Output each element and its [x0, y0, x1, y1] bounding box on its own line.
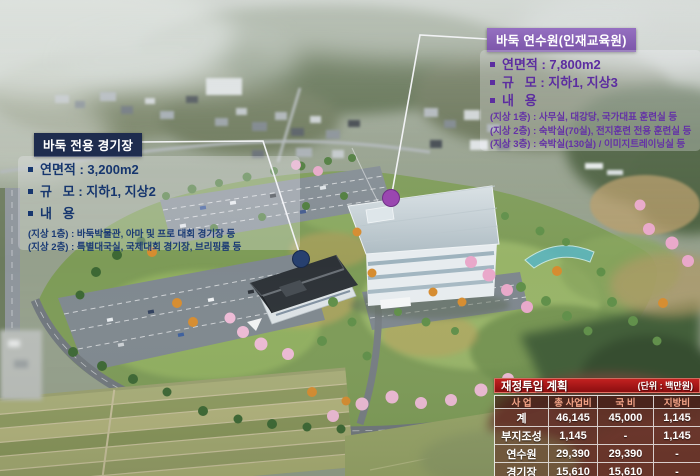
- budget-table-grid: 사 업 총 사업비 국 비 지방비 계 46,145 45,000 1,145 …: [494, 395, 700, 476]
- training-callout-panel: 연면적 : 7,800m2 규 모 : 지하1, 지상3 내 용 (지상 1층)…: [480, 50, 700, 151]
- budget-table-title: 재정투입 계획: [501, 378, 568, 394]
- budget-table-unit: (단위 : 백만원): [638, 379, 693, 392]
- table-cell: 45,000: [598, 409, 654, 427]
- table-cell: 46,145: [549, 409, 598, 427]
- table-cell: 경기장: [495, 463, 549, 476]
- spec-line-scale: 규 모 : 지하1, 지상3: [490, 75, 700, 90]
- col-header-total: 총 사업비: [549, 396, 598, 409]
- training-callout: 바둑 연수원(인재교육원) 연면적 : 7,800m2 규 모 : 지하1, 지…: [487, 28, 636, 52]
- spec-line-text: 내 용: [40, 206, 75, 221]
- table-cell: -: [598, 427, 654, 445]
- table-cell: 1,145: [654, 427, 700, 445]
- square-bullet-icon: [28, 167, 33, 172]
- table-cell: -: [654, 463, 700, 476]
- square-bullet-icon: [490, 98, 495, 103]
- table-cell: 15,610: [598, 463, 654, 476]
- stadium-callout-title: 바둑 전용 경기장: [34, 133, 142, 157]
- spec-line-text: 규 모 : 지하1, 지상2: [40, 184, 156, 199]
- table-cell: 연수원: [495, 445, 549, 463]
- table-cell: 29,390: [598, 445, 654, 463]
- floor-line-1: (지상 1층) : 바둑박물관, 아마 및 프로 대회 경기장 등: [28, 228, 300, 241]
- square-bullet-icon: [490, 62, 495, 67]
- table-cell: 부지조성: [495, 427, 549, 445]
- col-header-project: 사 업: [495, 396, 549, 409]
- budget-table-titlebar: 재정투입 계획 (단위 : 백만원): [494, 378, 700, 393]
- table-cell: 1,145: [654, 409, 700, 427]
- site-plan-slide: 바둑 전용 경기장 연면적 : 3,200m2 규 모 : 지하1, 지상2 내…: [0, 0, 700, 476]
- table-cell: 15,610: [549, 463, 598, 476]
- table-cell: -: [654, 445, 700, 463]
- spec-line-area: 연면적 : 3,200m2: [28, 162, 300, 177]
- spec-line-text: 연면적 : 3,200m2: [40, 162, 139, 177]
- table-cell: 29,390: [549, 445, 598, 463]
- table-cell: 계: [495, 409, 549, 427]
- stadium-callout: 바둑 전용 경기장 연면적 : 3,200m2 규 모 : 지하1, 지상2 내…: [34, 133, 142, 157]
- budget-table: 재정투입 계획 (단위 : 백만원) 사 업 총 사업비 국 비 지방비 계 4…: [494, 378, 700, 476]
- stadium-callout-panel: 연면적 : 3,200m2 규 모 : 지하1, 지상2 내 용 (지상 1층)…: [18, 156, 300, 250]
- floor-details: (지상 1층) : 바둑박물관, 아마 및 프로 대회 경기장 등 (지상 2층…: [28, 228, 300, 254]
- spec-line-area: 연면적 : 7,800m2: [490, 57, 700, 72]
- square-bullet-icon: [28, 189, 33, 194]
- col-header-national: 국 비: [598, 396, 654, 409]
- square-bullet-icon: [28, 211, 33, 216]
- spec-line-text: 규 모 : 지하1, 지상3: [502, 75, 618, 90]
- floor-line-1: (지상 1층) : 사무실, 대강당, 국가대표 훈련실 등: [490, 111, 700, 125]
- spec-line-scale: 규 모 : 지하1, 지상2: [28, 184, 300, 199]
- spec-line-contents: 내 용: [490, 93, 700, 108]
- square-bullet-icon: [490, 80, 495, 85]
- table-cell: 1,145: [549, 427, 598, 445]
- floor-line-3: (지상 3층) : 숙박실(130실) / 이미지트레이닝실 등: [490, 138, 700, 152]
- floor-details: (지상 1층) : 사무실, 대강당, 국가대표 훈련실 등 (지상 2층) :…: [490, 111, 700, 152]
- training-callout-title: 바둑 연수원(인재교육원): [487, 28, 636, 52]
- spec-line-text: 연면적 : 7,800m2: [502, 57, 601, 72]
- floor-line-2: (지상 2층) : 특별대국실, 국제대회 경기장, 브리핑룸 등: [28, 241, 300, 254]
- floor-line-2: (지상 2층) : 숙박실(70실), 전지훈련 전용 훈련실 등: [490, 125, 700, 139]
- col-header-local: 지방비: [654, 396, 700, 409]
- spec-line-text: 내 용: [502, 93, 537, 108]
- spec-line-contents: 내 용: [28, 206, 300, 221]
